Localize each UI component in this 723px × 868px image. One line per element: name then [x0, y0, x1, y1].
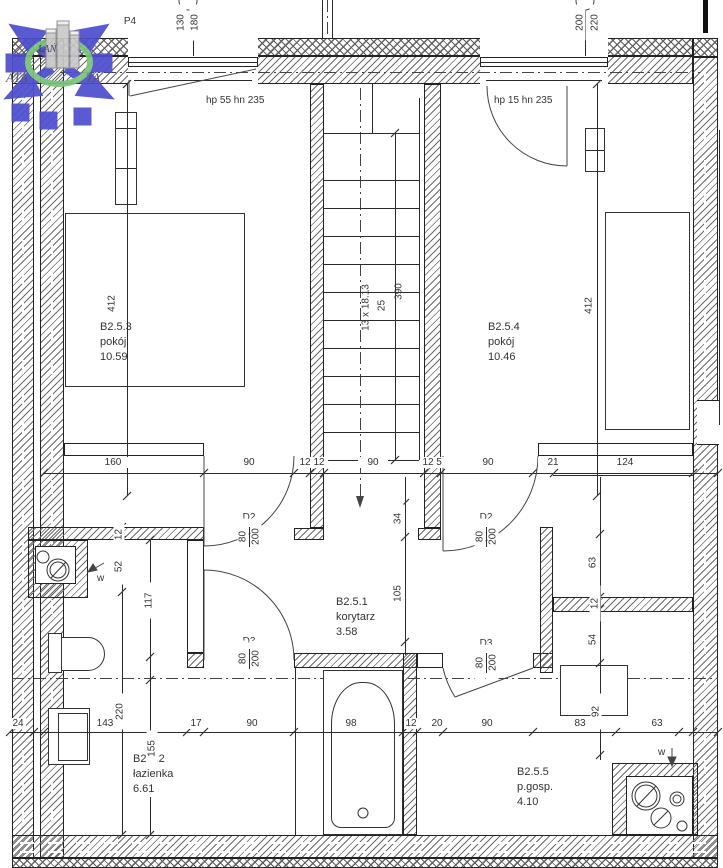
dim: 63 — [642, 718, 672, 729]
shaft-bath-duct — [35, 546, 76, 584]
section-mark-bar — [703, 0, 708, 33]
toilet-tank — [48, 633, 62, 673]
stair-count-label: 13 x 18.13 — [361, 282, 372, 334]
wall-tub-pgosp — [403, 653, 417, 835]
dim: 90 — [237, 718, 267, 729]
bed-room2 — [605, 212, 690, 430]
window-right-hp-label: hp 15 hn 235 — [494, 93, 552, 108]
dim: 124 — [610, 457, 640, 468]
dim: 90 — [234, 457, 264, 468]
dim: 155 — [147, 731, 158, 767]
dim: 98 — [336, 718, 366, 729]
door-d3-right-arc — [443, 668, 455, 697]
dim: 412 — [107, 286, 118, 322]
dim: 117 — [144, 583, 155, 619]
wall-room1-corridor — [64, 443, 204, 456]
wall-bath-corridor — [187, 540, 204, 653]
floor-plan-canvas: ATA TA ŁAŃ P4 130 180 200 220 hp 55 hn 2… — [0, 0, 723, 868]
dim-line-rowB — [10, 732, 718, 733]
wall-corridor-right — [540, 527, 553, 673]
window-left-hp-label: hp 55 hn 235 — [206, 93, 264, 108]
dim: 12 — [114, 517, 125, 553]
dim: 34 — [393, 501, 404, 537]
door-d2-right-h: 200 — [488, 519, 499, 555]
room-label-pokoj2: B2.5.4pokój10.46 — [488, 320, 520, 365]
door-d3-right-w: 80 — [475, 645, 486, 681]
dim: 20 — [430, 718, 444, 729]
vent-label-pgosp: w — [658, 745, 665, 760]
dim: 5 — [434, 457, 444, 468]
door-d3-right-h: 200 — [488, 645, 499, 681]
door-d3-left-h: 200 — [251, 641, 262, 677]
dim: 54 — [588, 622, 599, 658]
door-d2-right-w: 80 — [475, 519, 486, 555]
wall-bottom-masonry — [12, 835, 718, 858]
wall-bottom-insulation — [12, 858, 718, 868]
dim: 24 — [10, 718, 26, 729]
wall-room2-corridor — [538, 443, 693, 456]
room-label-pgosp: B2.5.5p.gosp.4.10 — [517, 765, 553, 810]
toilet-bowl — [61, 637, 105, 671]
dim: 12 — [404, 718, 418, 729]
vent-label-bath: w — [97, 571, 104, 586]
dim-line-rowA — [44, 473, 718, 474]
stair-stringer — [419, 98, 420, 460]
door-d2-left-h: 200 — [251, 519, 262, 555]
wall-right-notch — [697, 400, 719, 445]
bed-room1 — [65, 213, 245, 387]
dim: 12 — [590, 586, 601, 622]
stair-tread-label: 25 — [377, 288, 388, 324]
dim: 412 — [584, 288, 595, 324]
dim: 90 — [472, 718, 502, 729]
dim: 90 — [473, 457, 503, 468]
door-d2-left-w: 80 — [238, 519, 249, 555]
dim: 21 — [538, 457, 568, 468]
wall-stair-left-foot — [294, 528, 324, 540]
window-left-dim1: 130 — [176, 5, 187, 41]
door-d3-left-w: 80 — [238, 641, 249, 677]
dim: 105 — [393, 576, 404, 612]
room-label-korytarz: B2.5.1korytarz3.58 — [336, 595, 375, 640]
washer-inner — [58, 713, 88, 761]
dim: 17 — [188, 718, 204, 729]
bathtub-inner — [331, 682, 395, 828]
dim: 12 — [310, 457, 328, 468]
window-right-dim2: 220 — [590, 5, 601, 41]
dim: 92 — [591, 694, 602, 730]
wall-niche — [553, 597, 693, 612]
dim: 160 — [98, 457, 128, 468]
wall-stair-right-foot — [418, 528, 441, 540]
window-right-dim1: 200 — [575, 5, 586, 41]
door-jamb-block — [417, 653, 443, 668]
section-label-p4: P4 — [118, 16, 142, 27]
stair-length-label: 390 — [394, 274, 405, 310]
dim: 220 — [115, 694, 126, 730]
dim: 90 — [358, 457, 388, 468]
window-left-dim2: 180 — [190, 5, 201, 41]
shaft-pgosp-duct — [626, 776, 693, 835]
room-label-pokoj1: B2.5.3pokój10.59 — [100, 320, 132, 365]
cabinet-room1 — [115, 112, 137, 205]
wall-right-insulation — [693, 38, 718, 57]
wall-bath-corridor-cap — [187, 653, 204, 668]
wall-corridor-bottom — [294, 653, 417, 668]
dim: 52 — [114, 549, 125, 585]
dim: 63 — [588, 545, 599, 581]
axis-top — [60, 72, 700, 73]
